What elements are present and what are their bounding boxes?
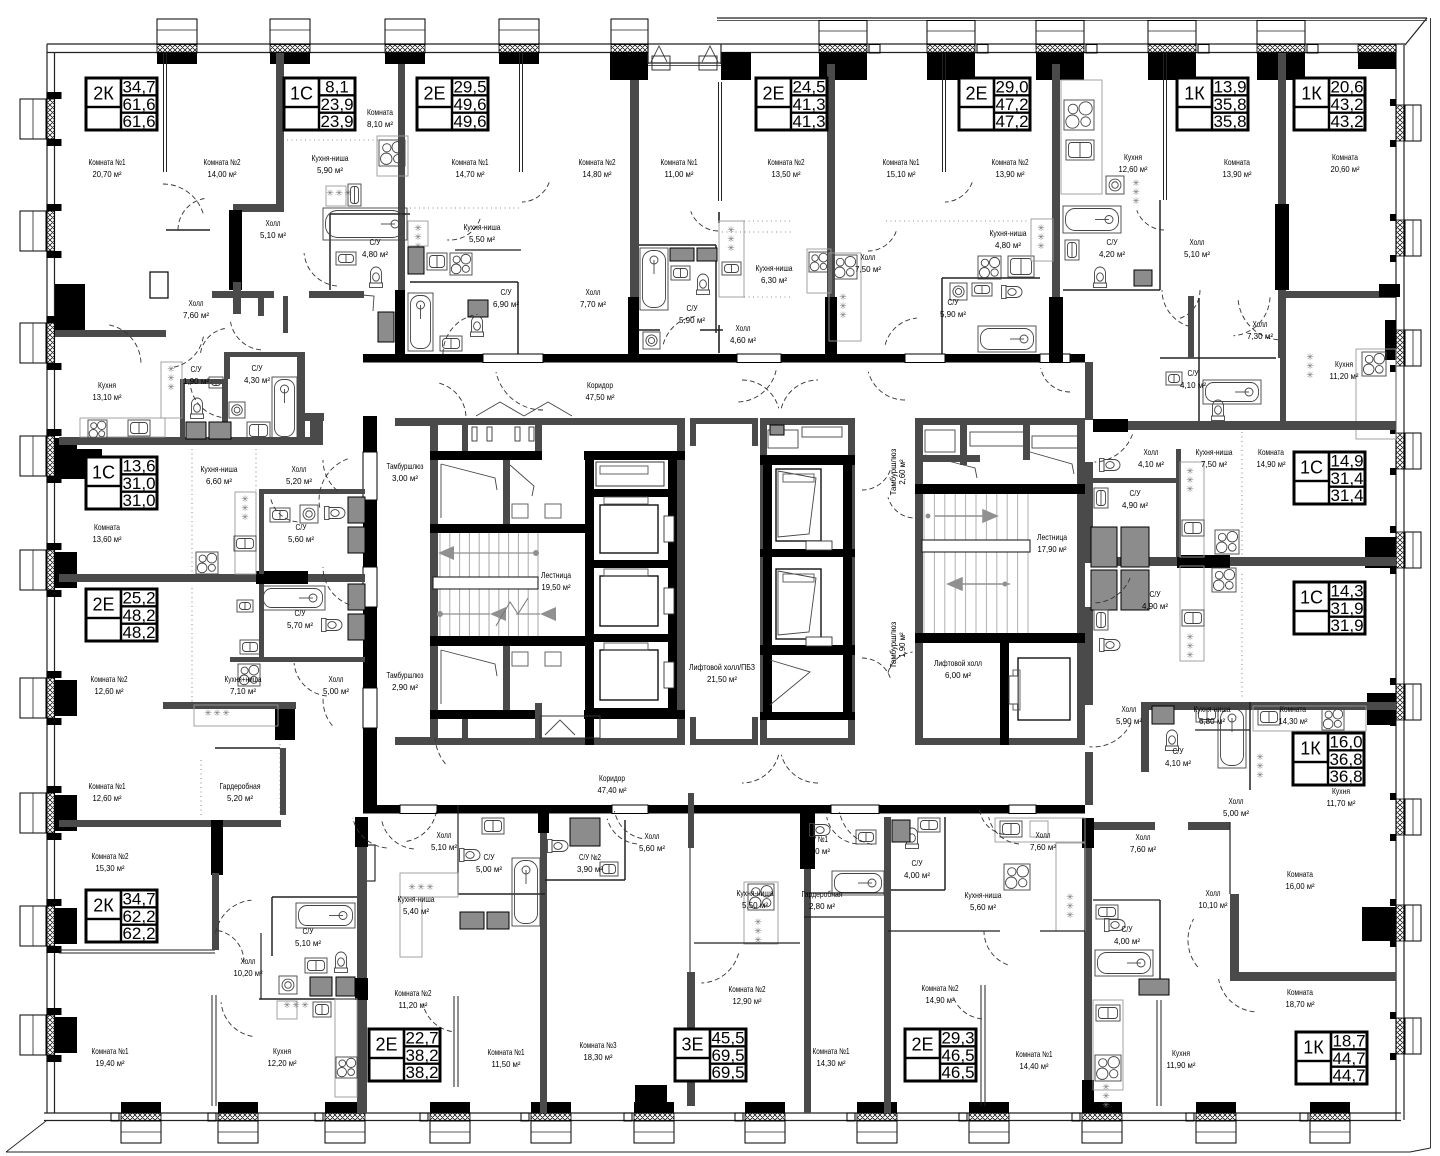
svg-text:17,90 м²: 17,90 м²: [1038, 544, 1067, 554]
svg-text:Кухня-ниша: Кухня-ниша: [1196, 447, 1233, 457]
svg-text:12,60 м²: 12,60 м²: [93, 793, 122, 803]
svg-text:4,00 м²: 4,00 м²: [1114, 936, 1140, 946]
svg-text:С/У: С/У: [1107, 237, 1119, 247]
svg-text:С/У: С/У: [1122, 924, 1134, 934]
svg-text:15,10 м²: 15,10 м²: [887, 169, 916, 179]
svg-text:С/У: С/У: [501, 287, 513, 297]
svg-text:69,5: 69,5: [711, 1046, 744, 1065]
svg-text:4,80 м²: 4,80 м²: [362, 249, 388, 259]
svg-text:62,2: 62,2: [122, 924, 155, 943]
svg-text:Холл: Холл: [1136, 832, 1151, 842]
svg-text:5,90 м²: 5,90 м²: [679, 315, 705, 325]
svg-text:Кухня-ниша: Кухня-ниша: [965, 890, 1002, 900]
svg-text:1К: 1К: [1184, 84, 1205, 104]
svg-text:6,00 м²: 6,00 м²: [945, 670, 971, 680]
svg-text:34,7: 34,7: [122, 78, 155, 97]
svg-text:С/У: С/У: [370, 237, 382, 247]
svg-text:43,2: 43,2: [1330, 112, 1363, 131]
svg-text:1К: 1К: [1300, 739, 1321, 759]
svg-text:11,90 м²: 11,90 м²: [1167, 1060, 1196, 1070]
svg-text:5,70 м²: 5,70 м²: [287, 620, 313, 630]
svg-text:Комната №2: Комната №2: [91, 674, 128, 684]
svg-text:6,60 м²: 6,60 м²: [206, 476, 232, 486]
svg-text:Комната: Комната: [1332, 152, 1358, 162]
svg-text:41,3: 41,3: [792, 95, 825, 114]
svg-text:7,50 м²: 7,50 м²: [1201, 459, 1227, 469]
svg-text:Лестница: Лестница: [541, 570, 571, 580]
svg-text:Лифтовой холл: Лифтовой холл: [934, 658, 982, 668]
svg-text:С/У: С/У: [295, 608, 307, 618]
svg-text:41,3: 41,3: [792, 112, 825, 131]
svg-text:23,9: 23,9: [320, 112, 353, 131]
svg-text:2К: 2К: [93, 896, 114, 916]
svg-text:5,40 м²: 5,40 м²: [403, 906, 429, 916]
svg-text:31,4: 31,4: [1330, 469, 1363, 488]
svg-text:✳: ✳: [839, 310, 847, 320]
svg-text:Кухня: Кухня: [98, 380, 116, 390]
svg-text:48,2: 48,2: [122, 623, 155, 642]
svg-text:2Е: 2Е: [375, 1035, 397, 1055]
svg-text:1,90 м²: 1,90 м²: [183, 376, 209, 386]
svg-text:3Е: 3Е: [681, 1035, 703, 1055]
svg-text:13,60 м²: 13,60 м²: [93, 534, 122, 544]
svg-text:31,9: 31,9: [1330, 616, 1363, 635]
svg-text:11,00 м²: 11,00 м²: [665, 169, 694, 179]
svg-text:Комната: Комната: [1280, 704, 1306, 714]
svg-text:14,80 м²: 14,80 м²: [583, 169, 612, 179]
svg-text:11,50 м²: 11,50 м²: [492, 1059, 521, 1069]
svg-text:Комната №1: Комната №1: [1016, 1049, 1053, 1059]
svg-text:✳: ✳: [408, 882, 416, 892]
svg-text:Комната №1: Комната №1: [813, 1046, 850, 1056]
svg-text:Холл: Холл: [645, 831, 660, 841]
svg-text:16,0: 16,0: [1329, 733, 1362, 752]
svg-text:С/У: С/У: [948, 297, 960, 307]
svg-text:5,90 м²: 5,90 м²: [1116, 716, 1142, 726]
svg-text:4,10 м²: 4,10 м²: [1180, 380, 1206, 390]
svg-text:Холл: Холл: [586, 287, 601, 297]
svg-text:19,40 м²: 19,40 м²: [96, 1058, 125, 1068]
svg-text:45,5: 45,5: [711, 1029, 744, 1048]
svg-text:21,50 м²: 21,50 м²: [707, 674, 737, 684]
svg-text:11,20 м²: 11,20 м²: [1330, 371, 1359, 381]
svg-text:19,50 м²: 19,50 м²: [542, 582, 571, 592]
svg-text:16,00 м²: 16,00 м²: [1286, 881, 1315, 891]
svg-text:12,60 м²: 12,60 м²: [1119, 164, 1148, 174]
svg-text:Тамбуршлюз: Тамбуршлюз: [387, 461, 424, 471]
svg-text:Кухня: Кухня: [1335, 359, 1353, 369]
svg-text:Кухня: Кухня: [1332, 786, 1350, 796]
svg-text:14,90 м²: 14,90 м²: [1257, 459, 1286, 469]
svg-text:47,50 м²: 47,50 м²: [586, 392, 615, 402]
svg-text:38,2: 38,2: [405, 1063, 438, 1082]
svg-text:34,7: 34,7: [122, 890, 155, 909]
svg-text:Кухня-ниша: Кухня-ниша: [737, 888, 774, 898]
svg-text:10,20 м²: 10,20 м²: [234, 968, 263, 978]
svg-text:13,90 м²: 13,90 м²: [996, 169, 1025, 179]
svg-text:Холл: Холл: [1036, 830, 1051, 840]
svg-text:Комната: Комната: [1258, 447, 1284, 457]
svg-text:22,7: 22,7: [405, 1029, 438, 1048]
svg-text:Комната №1: Комната №1: [89, 157, 126, 167]
svg-text:5,60 м²: 5,60 м²: [639, 843, 665, 853]
svg-text:31,4: 31,4: [1330, 486, 1363, 505]
svg-text:5,90 м²: 5,90 м²: [940, 309, 966, 319]
svg-text:1С: 1С: [290, 84, 313, 104]
svg-text:35,8: 35,8: [1213, 112, 1246, 131]
svg-text:49,6: 49,6: [453, 112, 486, 131]
svg-text:36,8: 36,8: [1329, 750, 1362, 769]
svg-text:13,10 м²: 13,10 м²: [93, 392, 122, 402]
svg-text:Кухня-ниша: Кухня-ниша: [1194, 704, 1231, 714]
svg-text:✳: ✳: [727, 243, 735, 253]
svg-text:Коридор: Коридор: [587, 380, 613, 390]
svg-text:46,5: 46,5: [941, 1063, 974, 1082]
svg-text:2,90 м²: 2,90 м²: [392, 682, 418, 692]
svg-text:✳: ✳: [326, 188, 334, 198]
svg-text:13,50 м²: 13,50 м²: [772, 169, 801, 179]
svg-text:5,20 м²: 5,20 м²: [227, 793, 253, 803]
svg-text:6,30 м²: 6,30 м²: [761, 275, 787, 285]
svg-text:Комната №2: Комната №2: [922, 983, 959, 993]
svg-text:✳: ✳: [1186, 484, 1194, 494]
svg-text:✳: ✳: [1037, 241, 1045, 251]
svg-text:Коридор: Коридор: [599, 773, 625, 783]
svg-text:11,20 м²: 11,20 м²: [399, 1000, 428, 1010]
svg-text:Комната: Комната: [367, 107, 393, 117]
svg-text:✳: ✳: [335, 188, 343, 198]
svg-text:Комната №2: Комната №2: [395, 988, 432, 998]
svg-text:✳: ✳: [1186, 650, 1194, 660]
svg-text:47,2: 47,2: [995, 95, 1028, 114]
svg-text:С/У: С/У: [912, 858, 924, 868]
svg-text:Комната №3: Комната №3: [580, 1040, 617, 1050]
svg-text:1С: 1С: [1300, 588, 1323, 608]
svg-text:2,80 м²: 2,80 м²: [809, 901, 835, 911]
svg-text:12,90 м²: 12,90 м²: [733, 996, 762, 1006]
svg-text:Кухня-ниша: Кухня-ниша: [201, 464, 238, 474]
svg-text:5,00 м²: 5,00 м²: [1223, 808, 1249, 818]
svg-text:5,50 м²: 5,50 м²: [742, 900, 768, 910]
svg-text:Лестница: Лестница: [1037, 532, 1067, 542]
svg-text:Холл: Холл: [292, 464, 307, 474]
svg-text:7,60 м²: 7,60 м²: [1030, 842, 1056, 852]
svg-text:Кухня-ниша: Кухня-ниша: [756, 263, 793, 273]
svg-text:Холл: Холл: [437, 830, 452, 840]
svg-text:29,3: 29,3: [941, 1029, 974, 1048]
svg-text:2К: 2К: [93, 84, 114, 104]
svg-text:1С: 1С: [1300, 458, 1323, 478]
svg-text:14,9: 14,9: [1330, 452, 1363, 471]
svg-text:69,5: 69,5: [711, 1063, 744, 1082]
svg-text:31,9: 31,9: [1330, 599, 1363, 618]
svg-text:Комната №2: Комната №2: [992, 157, 1029, 167]
svg-text:61,6: 61,6: [122, 95, 155, 114]
svg-text:5,00 м²: 5,00 м²: [323, 686, 349, 696]
svg-text:2Е: 2Е: [423, 84, 445, 104]
svg-text:Гардеробная: Гардеробная: [802, 889, 843, 899]
svg-text:Кухня-ниша: Кухня-ниша: [312, 153, 349, 163]
svg-text:5,10 м²: 5,10 м²: [431, 842, 457, 852]
svg-text:24,5: 24,5: [792, 78, 825, 97]
svg-text:2Е: 2Е: [965, 84, 987, 104]
svg-text:Комната №2: Комната №2: [579, 157, 616, 167]
svg-text:Тамбуршлюз: Тамбуршлюз: [387, 670, 424, 680]
svg-text:7,30 м²: 7,30 м²: [1247, 331, 1273, 341]
svg-text:14,70 м²: 14,70 м²: [456, 169, 485, 179]
svg-text:14,30 м²: 14,30 м²: [817, 1058, 846, 1068]
svg-text:44,7: 44,7: [1332, 1066, 1365, 1085]
svg-text:5,60 м²: 5,60 м²: [288, 534, 314, 544]
svg-text:✳: ✳: [426, 882, 434, 892]
svg-text:6,80 м²: 6,80 м²: [1199, 716, 1225, 726]
svg-text:Холл: Холл: [1253, 319, 1268, 329]
svg-text:1К: 1К: [1301, 84, 1322, 104]
svg-text:Комната №1: Комната №1: [452, 157, 489, 167]
svg-text:Комната №2: Комната №2: [92, 851, 129, 861]
svg-text:✳: ✳: [1066, 910, 1074, 920]
svg-text:7,50 м²: 7,50 м²: [855, 264, 881, 274]
svg-text:4,90 м²: 4,90 м²: [1122, 500, 1148, 510]
svg-text:С/У: С/У: [191, 364, 203, 374]
svg-text:Холл: Холл: [1190, 237, 1205, 247]
svg-text:Кухня+ниша: Кухня+ниша: [225, 674, 262, 684]
svg-text:Комната: Комната: [1287, 869, 1313, 879]
svg-text:5,10 м²: 5,10 м²: [1184, 249, 1210, 259]
svg-text:1С: 1С: [92, 463, 115, 483]
svg-text:14,40 м²: 14,40 м²: [1020, 1061, 1049, 1071]
svg-text:4,00 м²: 4,00 м²: [904, 870, 930, 880]
svg-text:18,70 м²: 18,70 м²: [1286, 999, 1315, 1009]
svg-text:Комната №1: Комната №1: [883, 157, 920, 167]
svg-text:48,2: 48,2: [122, 606, 155, 625]
svg-text:2Е: 2Е: [911, 1035, 933, 1055]
svg-text:С/У: С/У: [252, 363, 264, 373]
svg-text:С/У №1: С/У №1: [806, 834, 828, 844]
svg-text:7,60 м²: 7,60 м²: [1130, 844, 1156, 854]
svg-text:Кухня: Кухня: [1172, 1048, 1190, 1058]
svg-text:Кухня-ниша: Кухня-ниша: [464, 222, 501, 232]
svg-text:7,70 м²: 7,70 м²: [580, 299, 606, 309]
svg-text:14,3: 14,3: [1330, 582, 1363, 601]
svg-text:46,5: 46,5: [941, 1046, 974, 1065]
svg-text:Гардеробная: Гардеробная: [220, 781, 261, 791]
svg-text:Холл: Холл: [1206, 888, 1221, 898]
svg-text:2Е: 2Е: [762, 84, 784, 104]
svg-text:Кухня-ниша: Кухня-ниша: [990, 228, 1027, 238]
svg-text:Кухня: Кухня: [273, 1046, 291, 1056]
svg-text:С/У: С/У: [1173, 746, 1185, 756]
svg-text:Комната №2: Комната №2: [729, 984, 766, 994]
svg-text:4,30 м²: 4,30 м²: [244, 375, 270, 385]
svg-text:✳: ✳: [1102, 1100, 1110, 1110]
svg-text:15,30 м²: 15,30 м²: [96, 863, 125, 873]
svg-text:✳: ✳: [1306, 370, 1314, 380]
svg-text:13,90 м²: 13,90 м²: [1223, 169, 1252, 179]
svg-text:Холл: Холл: [736, 323, 751, 333]
svg-text:12,20 м²: 12,20 м²: [268, 1058, 297, 1068]
svg-text:С/У №2: С/У №2: [579, 852, 601, 862]
svg-text:10,10 м²: 10,10 м²: [1199, 900, 1228, 910]
svg-text:47,2: 47,2: [995, 112, 1028, 131]
svg-text:✳: ✳: [241, 512, 249, 522]
svg-text:31,0: 31,0: [122, 491, 155, 510]
svg-text:С/У: С/У: [687, 303, 699, 313]
svg-text:7,60 м²: 7,60 м²: [183, 310, 209, 320]
svg-text:13,6: 13,6: [122, 457, 155, 476]
svg-text:1К: 1К: [1303, 1038, 1324, 1058]
svg-text:6,90 м²: 6,90 м²: [493, 299, 519, 309]
svg-text:Комната №1: Комната №1: [92, 1046, 129, 1056]
svg-text:Холл: Холл: [241, 956, 256, 966]
svg-text:Комната: Комната: [94, 522, 120, 532]
svg-text:Холл: Холл: [1144, 447, 1159, 457]
svg-text:5,10 м²: 5,10 м²: [295, 938, 321, 948]
svg-text:14,00 м²: 14,00 м²: [208, 169, 237, 179]
svg-text:43,2: 43,2: [1330, 95, 1363, 114]
svg-text:Комната №1: Комната №1: [661, 157, 698, 167]
svg-text:✳: ✳: [417, 882, 425, 892]
svg-text:Холл: Холл: [861, 252, 876, 262]
svg-text:Холл: Холл: [1122, 704, 1137, 714]
svg-text:Тамбуршлюз: Тамбуршлюз: [889, 448, 898, 495]
svg-text:4,60 м²: 4,60 м²: [730, 335, 756, 345]
svg-text:14,30 м²: 14,30 м²: [1279, 716, 1308, 726]
svg-text:Комната: Комната: [1287, 987, 1313, 997]
svg-text:✳: ✳: [1256, 770, 1264, 780]
svg-text:47,40 м²: 47,40 м²: [598, 785, 627, 795]
svg-text:Комната №1: Комната №1: [89, 781, 126, 791]
svg-text:✳: ✳: [204, 708, 212, 718]
svg-text:4,10 м²: 4,10 м²: [1165, 758, 1191, 768]
svg-text:Холл: Холл: [329, 674, 344, 684]
svg-text:С/У: С/У: [1188, 368, 1200, 378]
svg-text:4,90 м²: 4,90 м²: [1142, 601, 1168, 611]
svg-text:Кухня: Кухня: [1124, 152, 1142, 162]
svg-text:29,0: 29,0: [995, 78, 1028, 97]
svg-text:5,90 м²: 5,90 м²: [317, 165, 343, 175]
svg-text:12,60 м²: 12,60 м²: [95, 686, 124, 696]
svg-text:С/У: С/У: [1130, 488, 1142, 498]
svg-text:13,9: 13,9: [1213, 78, 1246, 97]
svg-text:36,8: 36,8: [1329, 767, 1362, 786]
svg-text:23,9: 23,9: [320, 95, 353, 114]
svg-text:8,1: 8,1: [325, 78, 349, 97]
svg-text:✳: ✳: [292, 1000, 300, 1010]
svg-text:Комната: Комната: [1224, 157, 1250, 167]
svg-text:44,7: 44,7: [1332, 1049, 1365, 1068]
svg-text:29,5: 29,5: [453, 78, 486, 97]
svg-text:31,0: 31,0: [122, 474, 155, 493]
svg-text:2,60 м²: 2,60 м²: [898, 459, 907, 485]
svg-text:62,2: 62,2: [122, 907, 155, 926]
svg-text:Комната №2: Комната №2: [768, 157, 805, 167]
svg-text:С/У: С/У: [1150, 589, 1162, 599]
svg-text:С/У: С/У: [296, 522, 308, 532]
svg-text:5,00 м²: 5,00 м²: [476, 864, 502, 874]
svg-text:61,6: 61,6: [122, 112, 155, 131]
svg-text:6,20 м²: 6,20 м²: [804, 846, 830, 856]
svg-text:Лифтовой холл/ПБЗ: Лифтовой холл/ПБЗ: [689, 662, 755, 672]
svg-text:5,10 м²: 5,10 м²: [260, 230, 286, 240]
svg-text:Тамбуршлюз: Тамбуршлюз: [889, 621, 898, 668]
svg-text:14,90 м²: 14,90 м²: [926, 995, 955, 1005]
svg-text:18,7: 18,7: [1332, 1032, 1365, 1051]
svg-text:20,60 м²: 20,60 м²: [1331, 164, 1360, 174]
svg-text:Холл: Холл: [266, 218, 281, 228]
svg-text:11,70 м²: 11,70 м²: [1327, 798, 1356, 808]
svg-text:20,6: 20,6: [1330, 78, 1363, 97]
svg-text:4,20 м²: 4,20 м²: [1099, 249, 1125, 259]
svg-text:35,8: 35,8: [1213, 95, 1246, 114]
svg-text:38,2: 38,2: [405, 1046, 438, 1065]
svg-text:7,10 м²: 7,10 м²: [230, 686, 256, 696]
svg-text:Холл: Холл: [189, 298, 204, 308]
svg-text:✳: ✳: [213, 708, 221, 718]
svg-text:✳: ✳: [283, 1000, 291, 1010]
svg-text:4,10 м²: 4,10 м²: [1138, 459, 1164, 469]
svg-text:✳: ✳: [222, 708, 230, 718]
svg-text:2Е: 2Е: [92, 595, 114, 615]
svg-text:Комната №1: Комната №1: [488, 1047, 525, 1057]
svg-text:3,00 м²: 3,00 м²: [392, 473, 418, 483]
svg-text:20,70 м²: 20,70 м²: [93, 169, 122, 179]
svg-text:С/У: С/У: [484, 852, 496, 862]
svg-text:5,50 м²: 5,50 м²: [469, 234, 495, 244]
svg-text:18,30 м²: 18,30 м²: [584, 1052, 613, 1062]
svg-text:5,60 м²: 5,60 м²: [970, 902, 996, 912]
svg-text:3,90 м²: 3,90 м²: [577, 864, 603, 874]
svg-text:25,2: 25,2: [122, 589, 155, 608]
svg-text:✳: ✳: [1132, 196, 1140, 206]
svg-text:Кухня-ниша: Кухня-ниша: [398, 894, 435, 904]
svg-text:4,80 м²: 4,80 м²: [995, 240, 1021, 250]
svg-text:8,10 м²: 8,10 м²: [367, 119, 393, 129]
svg-text:Комната №2: Комната №2: [204, 157, 241, 167]
svg-text:С/У: С/У: [303, 926, 315, 936]
svg-text:Холл: Холл: [1229, 796, 1244, 806]
svg-text:✳: ✳: [301, 1000, 309, 1010]
svg-text:49,6: 49,6: [453, 95, 486, 114]
svg-text:✳: ✳: [167, 382, 175, 392]
svg-text:5,20 м²: 5,20 м²: [286, 476, 312, 486]
